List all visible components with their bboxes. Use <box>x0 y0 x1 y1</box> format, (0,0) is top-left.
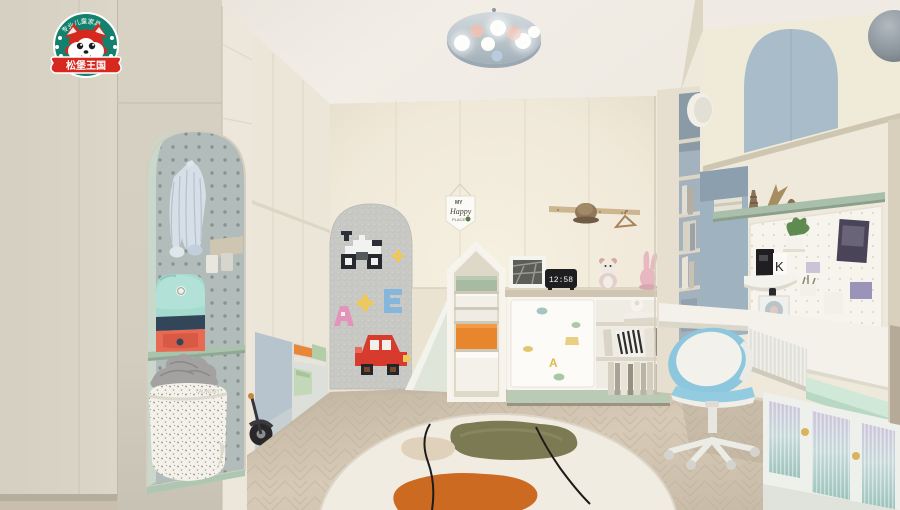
svg-text:K: K <box>775 259 784 274</box>
svg-text:Happy: Happy <box>449 207 472 216</box>
svg-text:MY: MY <box>455 200 463 206</box>
svg-text:松堡王国: 松堡王国 <box>66 59 106 72</box>
svg-text:12:58: 12:58 <box>549 276 573 285</box>
svg-text:PLACE: PLACE <box>452 217 465 222</box>
svg-text:LAUNDRY: LAUNDRY <box>196 389 220 395</box>
svg-text:A: A <box>549 356 558 370</box>
